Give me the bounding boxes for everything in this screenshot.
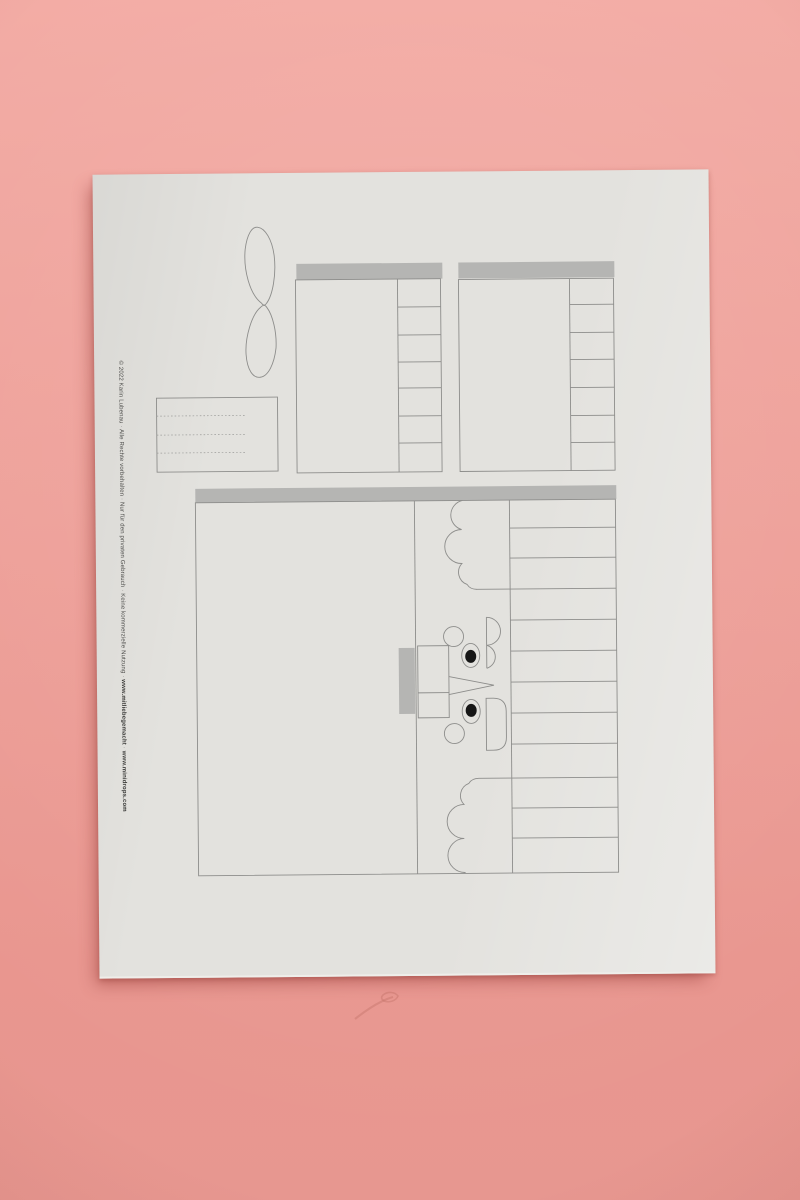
credit-url-2: www.minidrops.com: [121, 751, 128, 812]
credit-separator: ·: [119, 587, 125, 593]
hair-scallop-top: [444, 500, 510, 590]
label-fold-line: [157, 434, 245, 435]
fold-tabs: [398, 307, 442, 443]
side-panel-b: [458, 261, 616, 471]
cheek-circle-top: [443, 626, 463, 646]
template-sheet: © 2022 Karin Lubenau · Alle Rechte vorbe…: [93, 169, 716, 978]
label-card-outline: [156, 397, 278, 472]
cheek-circle-bottom: [444, 723, 464, 743]
bow-shape: [245, 227, 277, 377]
credit-separator: ·: [120, 673, 126, 679]
glue-bar: [296, 263, 442, 280]
face-group: [398, 617, 506, 751]
eye-pupil-top: [465, 650, 476, 663]
fold-tabs: [570, 304, 615, 442]
mouth-rounded-bump: [486, 698, 506, 750]
credit-rights: Alle Rechte vorbehalten: [118, 429, 125, 496]
glue-bar: [195, 485, 616, 503]
glue-bar: [458, 261, 614, 278]
panel-divider: [569, 279, 571, 471]
credit-private-use: Nur für den privaten Gebrauch: [118, 502, 125, 587]
label-fold-line: [157, 415, 245, 416]
bow-bottom-lobe: [246, 305, 277, 377]
credit-no-commercial: Keine kommerzielle Nutzung: [119, 593, 126, 673]
photo-pink-background: © 2022 Karin Lubenau · Alle Rechte vorbe…: [0, 0, 800, 1200]
credit-separator: ·: [118, 496, 124, 502]
nose-triangle: [449, 676, 494, 694]
mustache-double-bump: [486, 617, 500, 668]
pencil-arrow-mark: [348, 988, 410, 1030]
nose-base-rect: [418, 646, 450, 718]
hair-scallop-bottom: [447, 778, 513, 873]
credit-copyright: © 2022 Karin Lubenau: [117, 360, 124, 423]
label-fold-line: [157, 452, 245, 453]
credit-url-1: www.mitliebegemacht: [120, 679, 127, 745]
panel-outline: [295, 279, 442, 473]
fold-tab-ladder: [510, 527, 619, 838]
credit-separator: ·: [118, 424, 124, 430]
template-artwork: [93, 169, 716, 976]
credit-separator: ·: [120, 745, 126, 751]
glue-strip: [399, 648, 416, 714]
side-panel-a: [295, 263, 444, 473]
bow-top-lobe: [245, 227, 276, 305]
label-card: [156, 397, 278, 472]
body-wrap: [195, 485, 619, 876]
eye-pupil-bottom: [466, 704, 477, 717]
body-divider-right: [509, 500, 512, 873]
